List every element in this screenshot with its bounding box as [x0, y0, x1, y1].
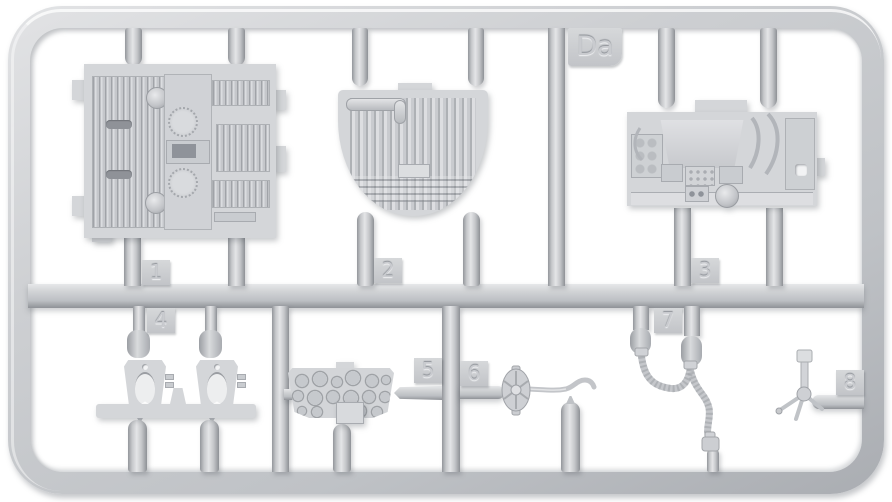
- part7-braided-hose: [635, 348, 719, 451]
- curved-parts-overlay: [0, 0, 892, 502]
- sprue-photo: Da 1 2 3 4 5 6 7 8: [0, 0, 892, 502]
- part6-handwheel-lever: [502, 366, 594, 415]
- part3-hose-arcs: [635, 114, 778, 174]
- part8-three-leg-fitting: [776, 350, 822, 419]
